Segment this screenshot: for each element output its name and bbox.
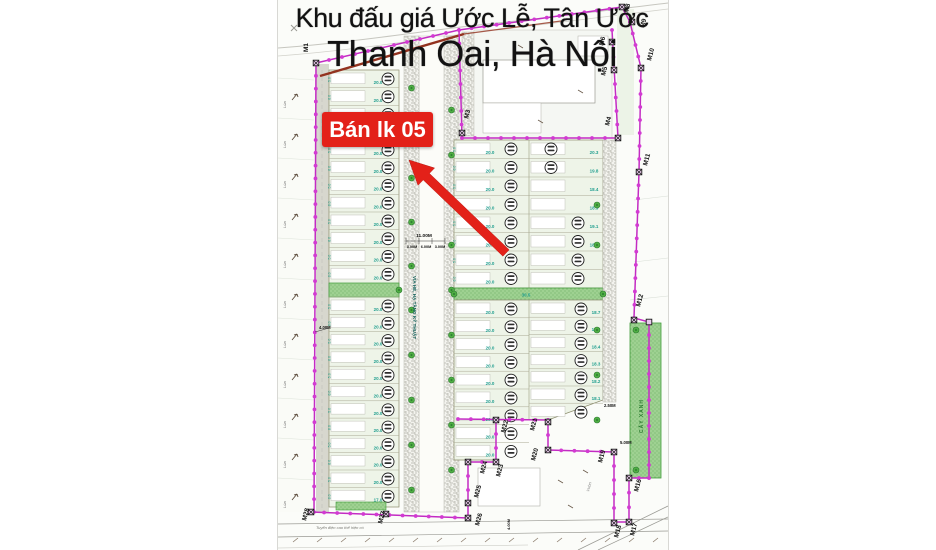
svg-text:20.0: 20.0: [374, 187, 383, 192]
lot-number-circle: [575, 372, 587, 384]
svg-text:M11: M11: [642, 152, 652, 166]
svg-text:20.0: 20.0: [374, 463, 383, 468]
lot-number-circle: [382, 251, 394, 263]
svg-text:5.0: 5.0: [328, 304, 332, 309]
svg-text:5.0: 5.0: [453, 258, 457, 263]
lot-number-circle: [505, 180, 517, 192]
svg-text:8.0: 8.0: [328, 201, 332, 206]
svg-text:M26: M26: [474, 512, 484, 526]
lot-number-circle: [382, 162, 394, 174]
svg-text:8.0: 8.0: [328, 272, 332, 277]
tree-icon: [449, 467, 455, 473]
svg-text:Lúa: Lúa: [282, 421, 287, 428]
svg-text:20.0: 20.0: [374, 307, 383, 312]
svg-text:20.0: 20.0: [486, 452, 495, 457]
tree-icon: [449, 377, 455, 383]
svg-text:4.00M: 4.00M: [506, 518, 511, 530]
boundary-marker-M12: M12: [631, 293, 645, 323]
svg-text:3.00M: 3.00M: [407, 245, 418, 249]
svg-text:20.0: 20.0: [374, 98, 383, 103]
svg-text:20.0: 20.0: [374, 204, 383, 209]
svg-text:20.0: 20.0: [374, 169, 383, 174]
screenshot-stage: LúaLúaLúaLúaLúaLúaLúaLúaLúaLúaLúa20.05.0…: [0, 0, 936, 550]
boundary-marker-M20: M20: [530, 447, 551, 461]
map-drawing: LúaLúaLúaLúaLúaLúaLúaLúaLúaLúaLúa20.05.0…: [278, 0, 668, 550]
tree-icon: [594, 327, 600, 333]
lot-number-circle: [575, 389, 587, 401]
lot-number-circle: [382, 456, 394, 468]
svg-text:Lúa: Lúa: [282, 501, 287, 508]
svg-text:20.0: 20.0: [374, 428, 383, 433]
svg-text:30.5: 30.5: [522, 293, 531, 298]
svg-text:M18: M18: [613, 524, 623, 538]
svg-text:20.3: 20.3: [590, 150, 599, 155]
lot-number-circle: [505, 374, 517, 386]
lot-number-circle: [572, 273, 584, 285]
lot-number-circle: [572, 217, 584, 229]
svg-text:20.0: 20.0: [374, 411, 383, 416]
lot-number-circle: [382, 233, 394, 245]
tree-icon: [449, 332, 455, 338]
svg-text:8.0: 8.0: [328, 460, 332, 465]
lot-number-circle: [382, 300, 394, 312]
svg-text:Lúa: Lúa: [282, 261, 287, 268]
lot-number-circle: [575, 320, 587, 332]
svg-text:20.0: 20.0: [374, 240, 383, 245]
lot-number-circle: [382, 352, 394, 364]
svg-text:20.0: 20.0: [486, 187, 495, 192]
boundary-marker-M17: M17: [626, 519, 639, 536]
lot-number-circle: [575, 303, 587, 315]
svg-text:5.0: 5.0: [328, 339, 332, 344]
tree-icon: [449, 422, 455, 428]
svg-text:5.0: 5.0: [328, 408, 332, 413]
svg-text:8.0: 8.0: [328, 356, 332, 361]
svg-text:20.0: 20.0: [374, 376, 383, 381]
svg-text:8.0: 8.0: [453, 277, 457, 282]
svg-text:20.0: 20.0: [486, 363, 495, 368]
svg-text:Lúa: Lúa: [282, 461, 287, 468]
svg-text:Tuyến điện cao thế hiện có: Tuyến điện cao thế hiện có: [316, 525, 365, 530]
svg-text:18.3: 18.3: [592, 362, 601, 367]
svg-text:8.0: 8.0: [328, 391, 332, 396]
tree-icon: [594, 202, 600, 208]
svg-text:8.0: 8.0: [328, 494, 332, 499]
tree-icon: [409, 442, 415, 448]
lot-number-circle: [505, 217, 517, 229]
svg-text:20.0: 20.0: [486, 169, 495, 174]
svg-text:8.0: 8.0: [328, 425, 332, 430]
svg-text:20.0: 20.0: [374, 80, 383, 85]
svg-text:19.1: 19.1: [590, 224, 599, 229]
cadastral-map: LúaLúaLúaLúaLúaLúaLúaLúaLúaLúaLúa20.05.0…: [277, 0, 669, 550]
lot-number-circle: [382, 91, 394, 103]
svg-text:18.4: 18.4: [590, 187, 599, 192]
lot-number-circle: [545, 162, 557, 174]
lot-number-circle: [572, 254, 584, 266]
svg-text:M12: M12: [635, 293, 645, 307]
svg-text:6.00M: 6.00M: [421, 245, 432, 249]
svg-text:20.0: 20.0: [486, 224, 495, 229]
svg-text:20.0: 20.0: [374, 324, 383, 329]
svg-text:M16: M16: [633, 478, 643, 492]
tree-icon: [449, 152, 455, 158]
svg-text:5.0: 5.0: [453, 147, 457, 152]
svg-text:8.0: 8.0: [328, 95, 332, 100]
tree-icon: [594, 242, 600, 248]
svg-text:20.0: 20.0: [486, 206, 495, 211]
lot-number-circle: [382, 387, 394, 399]
svg-text:11.00M: 11.00M: [416, 233, 432, 239]
tree-icon: [409, 263, 415, 269]
svg-text:5.0: 5.0: [328, 184, 332, 189]
svg-text:8.0: 8.0: [453, 166, 457, 171]
right-block-lower: 20.020.020.020.020.020.020.020.020.018.7…: [454, 300, 603, 460]
lot-number-circle: [382, 473, 394, 485]
svg-text:Lúa: Lúa: [282, 181, 287, 188]
tree-icon: [633, 467, 639, 473]
svg-text:20.0: 20.0: [486, 399, 495, 404]
svg-text:Vườn: Vườn: [585, 481, 593, 493]
boundary-marker-M18: M18: [611, 520, 623, 538]
svg-text:CÂY XANH: CÂY XANH: [638, 399, 645, 433]
lot-number-circle: [382, 438, 394, 450]
tree-icon: [409, 85, 415, 91]
svg-text:5.0: 5.0: [328, 219, 332, 224]
lot-number-circle: [505, 339, 517, 351]
lot-number-circle: [382, 180, 394, 192]
svg-text:20.0: 20.0: [486, 280, 495, 285]
svg-text:8.0: 8.0: [328, 166, 332, 171]
lot-number-circle: [505, 254, 517, 266]
lot-number-circle: [572, 236, 584, 248]
svg-text:Lúa: Lúa: [282, 141, 287, 148]
lot-number-circle: [575, 337, 587, 349]
lot-number-circle: [382, 490, 394, 502]
tree-icon: [396, 287, 402, 293]
tree-icon: [409, 352, 415, 358]
lot-number-circle: [505, 321, 517, 333]
boundary-marker-M28: M28: [301, 507, 314, 521]
lot-number-circle: [505, 162, 517, 174]
svg-text:VỈA HÈ, HẠ TẦNG KỸ THUẬT: VỈA HÈ, HẠ TẦNG KỸ THUẬT: [412, 276, 419, 339]
tree-icon: [409, 487, 415, 493]
svg-text:M20: M20: [530, 447, 540, 461]
lot-number-circle: [382, 335, 394, 347]
svg-text:Lúa: Lúa: [282, 301, 287, 308]
map-title-line1: Khu đấu giá Ước Lễ, Tân Ước: [277, 3, 667, 34]
svg-text:20.0: 20.0: [374, 258, 383, 263]
svg-text:20.0: 20.0: [374, 394, 383, 399]
svg-text:5.0: 5.0: [328, 442, 332, 447]
svg-text:20.0: 20.0: [374, 445, 383, 450]
lot-number-circle: [382, 197, 394, 209]
lot-number-circle: [505, 236, 517, 248]
svg-text:20.0: 20.0: [486, 328, 495, 333]
tree-icon: [594, 372, 600, 378]
svg-text:5.0: 5.0: [328, 77, 332, 82]
lot-number-circle: [382, 268, 394, 280]
svg-text:20.0: 20.0: [374, 480, 383, 485]
svg-text:20.0: 20.0: [374, 222, 383, 227]
lot-number-circle: [505, 199, 517, 211]
lot-number-circle: [382, 369, 394, 381]
svg-text:5.0: 5.0: [328, 148, 332, 153]
tree-icon: [409, 219, 415, 225]
lot-number-circle: [505, 143, 517, 155]
sale-label[interactable]: Bán lk 05: [322, 112, 433, 147]
lot-number-circle: [505, 356, 517, 368]
tree-icon: [449, 107, 455, 113]
lot-number-circle: [505, 445, 517, 457]
svg-text:18.7: 18.7: [592, 310, 601, 315]
svg-text:20.0: 20.0: [374, 359, 383, 364]
lot-number-circle: [382, 317, 394, 329]
lot-number-circle: [545, 143, 557, 155]
tree-icon: [633, 327, 639, 333]
svg-text:20.0: 20.0: [486, 261, 495, 266]
tree-icon: [409, 397, 415, 403]
svg-text:20.0: 20.0: [486, 435, 495, 440]
svg-text:20.0: 20.0: [486, 150, 495, 155]
svg-text:17.0: 17.0: [374, 497, 383, 502]
svg-text:Lúa: Lúa: [282, 221, 287, 228]
svg-text:18.2: 18.2: [592, 379, 601, 384]
lot-number-circle: [505, 392, 517, 404]
svg-text:20.0: 20.0: [486, 346, 495, 351]
tree-icon: [600, 291, 606, 297]
svg-text:5.0: 5.0: [453, 184, 457, 189]
svg-text:Lúa: Lúa: [282, 101, 287, 108]
svg-text:8.0: 8.0: [328, 237, 332, 242]
svg-text:19.8: 19.8: [590, 169, 599, 174]
svg-text:Lúa: Lúa: [282, 381, 287, 388]
svg-text:20.0: 20.0: [374, 275, 383, 280]
svg-text:18.4: 18.4: [592, 344, 601, 349]
map-title-line2: Thanh Oai, Hà Nội: [277, 33, 667, 75]
lot-number-circle: [505, 303, 517, 315]
svg-text:5.0: 5.0: [328, 373, 332, 378]
tree-icon: [451, 291, 457, 297]
svg-text:3.00M: 3.00M: [435, 245, 446, 249]
tree-icon: [449, 242, 455, 248]
svg-text:18.1: 18.1: [592, 396, 601, 401]
svg-text:5.00M: 5.00M: [620, 440, 632, 445]
lot-number-circle: [382, 421, 394, 433]
svg-text:20.0: 20.0: [486, 310, 495, 315]
svg-text:5.0: 5.0: [453, 221, 457, 226]
svg-text:5.0: 5.0: [328, 255, 332, 260]
lot-number-circle: [382, 404, 394, 416]
svg-text:20.0: 20.0: [374, 342, 383, 347]
svg-text:20.0: 20.0: [374, 151, 383, 156]
lot-number-circle: [575, 406, 587, 418]
tree-icon: [594, 417, 600, 423]
svg-text:20.0: 20.0: [486, 381, 495, 386]
svg-text:2.50M: 2.50M: [604, 403, 616, 408]
svg-text:5.0: 5.0: [328, 477, 332, 482]
lot-number-circle: [505, 273, 517, 285]
lot-number-circle: [575, 355, 587, 367]
lot-number-circle: [382, 215, 394, 227]
svg-text:Lúa: Lúa: [282, 341, 287, 348]
green-tree-strip: CÂY XANH: [630, 323, 661, 478]
tree-icon: [409, 175, 415, 181]
